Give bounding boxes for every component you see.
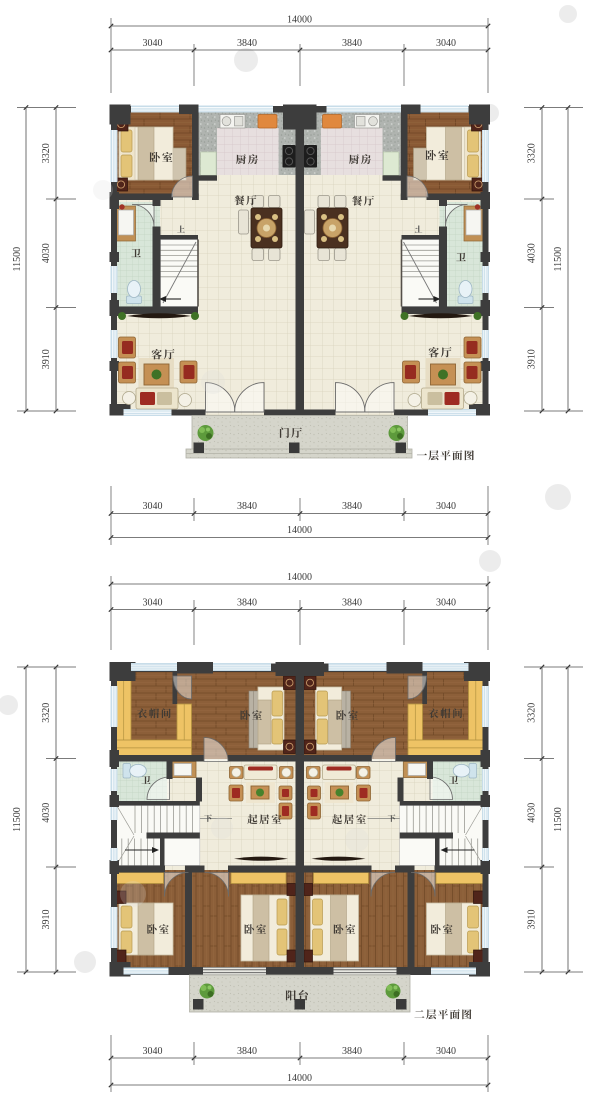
svg-text:4030: 4030 xyxy=(527,803,538,823)
svg-text:3840: 3840 xyxy=(237,598,257,609)
svg-text:4030: 4030 xyxy=(41,243,52,263)
svg-text:3910: 3910 xyxy=(41,349,52,369)
svg-text:3040: 3040 xyxy=(143,501,163,512)
svg-text:11500: 11500 xyxy=(12,247,23,272)
svg-text:11500: 11500 xyxy=(553,807,564,832)
svg-text:3840: 3840 xyxy=(342,598,362,609)
svg-text:3320: 3320 xyxy=(527,703,538,723)
svg-text:3040: 3040 xyxy=(143,598,163,609)
svg-text:14000: 14000 xyxy=(287,15,312,26)
svg-text:11500: 11500 xyxy=(553,247,564,272)
svg-text:4030: 4030 xyxy=(41,803,52,823)
svg-text:3910: 3910 xyxy=(527,349,538,369)
svg-text:3040: 3040 xyxy=(436,1046,456,1057)
svg-text:3040: 3040 xyxy=(143,38,163,49)
svg-text:3840: 3840 xyxy=(342,1046,362,1057)
svg-text:3840: 3840 xyxy=(237,1046,257,1057)
svg-text:11500: 11500 xyxy=(12,807,23,832)
svg-text:3840: 3840 xyxy=(237,38,257,49)
svg-text:3320: 3320 xyxy=(41,143,52,163)
svg-text:14000: 14000 xyxy=(287,525,312,536)
svg-text:3840: 3840 xyxy=(342,501,362,512)
svg-text:3320: 3320 xyxy=(527,143,538,163)
svg-text:3040: 3040 xyxy=(436,598,456,609)
svg-text:3910: 3910 xyxy=(527,910,538,930)
svg-text:3040: 3040 xyxy=(436,501,456,512)
svg-text:3840: 3840 xyxy=(237,501,257,512)
svg-text:3040: 3040 xyxy=(436,38,456,49)
svg-text:3840: 3840 xyxy=(342,38,362,49)
svg-text:14000: 14000 xyxy=(287,1073,312,1084)
svg-text:4030: 4030 xyxy=(527,243,538,263)
svg-text:14000: 14000 xyxy=(287,572,312,583)
svg-text:3320: 3320 xyxy=(41,703,52,723)
svg-text:3910: 3910 xyxy=(41,910,52,930)
svg-text:3040: 3040 xyxy=(143,1046,163,1057)
